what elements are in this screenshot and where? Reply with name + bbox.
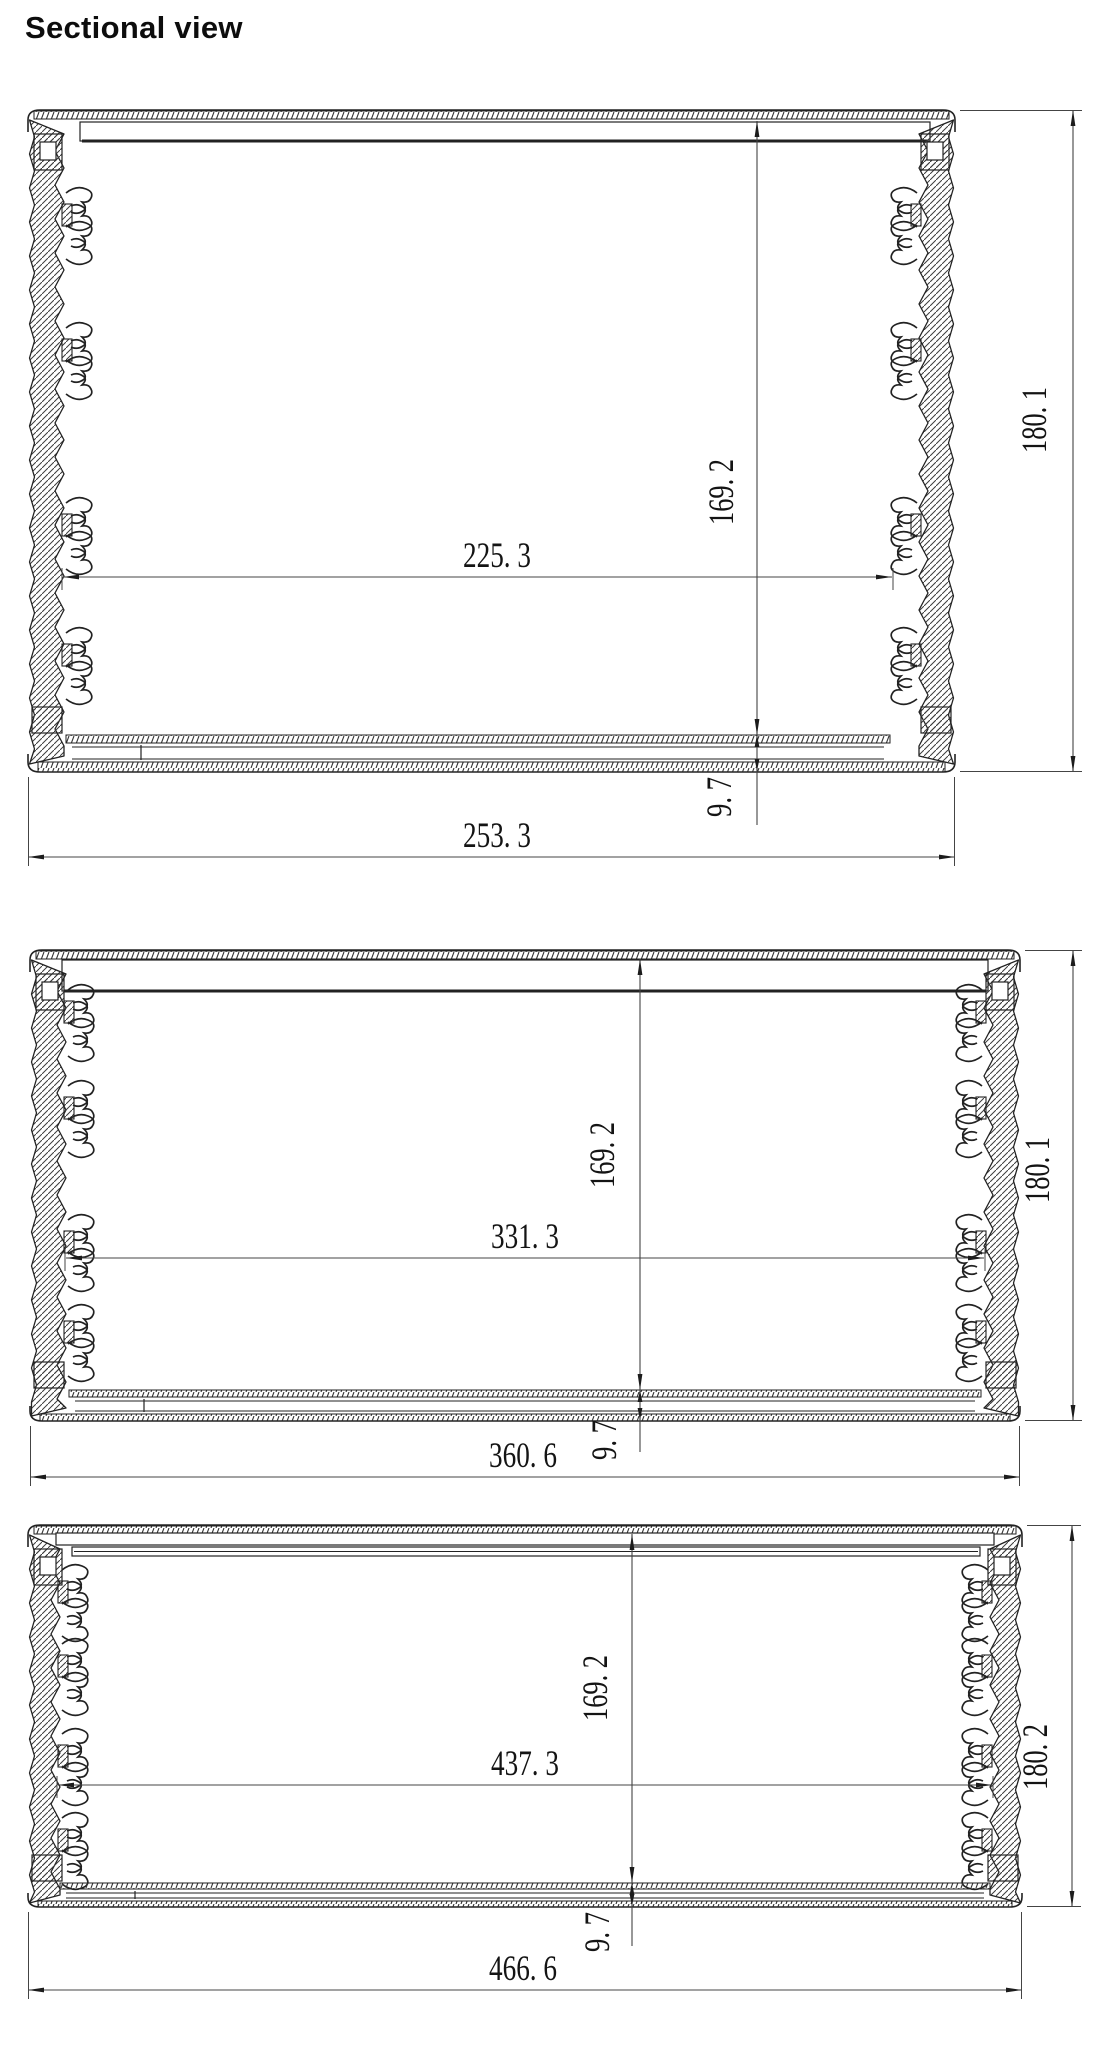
extrusion-wall bbox=[919, 120, 954, 764]
dim-base-thickness-2: 9. 7 bbox=[584, 1420, 624, 1460]
bottom-inner-plate bbox=[66, 735, 890, 743]
extrusion-wall bbox=[984, 960, 1019, 1416]
dim-outer-height-2: 180. 1 bbox=[1017, 1137, 1057, 1203]
dim-inner-height-1: 169. 2 bbox=[701, 459, 741, 525]
dim-inner-height-3: 169. 2 bbox=[575, 1655, 615, 1721]
sectional-view-3: 437. 3169. 29. 7466. 6180. 2 bbox=[28, 1525, 1081, 1999]
extrusion-wall bbox=[990, 1535, 1021, 1903]
dim-outer-width-3: 466. 6 bbox=[489, 1948, 557, 1988]
extrusion-wall bbox=[30, 120, 65, 764]
page: Sectional view 225. 3169. 29. 7253. 3180… bbox=[0, 0, 1108, 2048]
bottom-outer-plate bbox=[40, 1414, 1010, 1421]
dim-outer-width-1: 253. 3 bbox=[463, 815, 531, 855]
sectional-view-2: 331. 3169. 29. 7360. 6180. 1 bbox=[30, 950, 1082, 1486]
sectional-drawings-canvas: 225. 3169. 29. 7253. 3180. 1331. 3169. 2… bbox=[0, 0, 1108, 2048]
extrusion-wall bbox=[30, 1535, 61, 1903]
dim-base-thickness-3: 9. 7 bbox=[577, 1912, 617, 1952]
bottom-inner-plate bbox=[69, 1390, 981, 1397]
top-slot bbox=[56, 1533, 994, 1545]
top-slot bbox=[80, 122, 930, 141]
dim-outer-width-2: 360. 6 bbox=[489, 1435, 557, 1475]
dim-inner-width-2: 331. 3 bbox=[491, 1216, 559, 1256]
bottom-outer-plate bbox=[38, 1901, 1012, 1907]
sectional-view-1: 225. 3169. 29. 7253. 3180. 1 bbox=[28, 110, 1082, 866]
dim-outer-height-3: 180. 2 bbox=[1015, 1724, 1055, 1790]
dim-outer-height-1: 180. 1 bbox=[1014, 387, 1054, 453]
dim-inner-height-2: 169. 2 bbox=[582, 1122, 622, 1188]
bottom-inner-plate bbox=[60, 1883, 990, 1889]
dim-inner-width-1: 225. 3 bbox=[463, 535, 531, 575]
top-slot bbox=[62, 960, 988, 991]
dim-base-thickness-1: 9. 7 bbox=[699, 777, 739, 817]
top-plate bbox=[34, 111, 949, 119]
extrusion-wall bbox=[32, 960, 67, 1416]
bottom-outer-plate bbox=[38, 762, 945, 772]
dim-inner-width-3: 437. 3 bbox=[491, 1743, 559, 1783]
top-plate bbox=[36, 951, 1014, 959]
